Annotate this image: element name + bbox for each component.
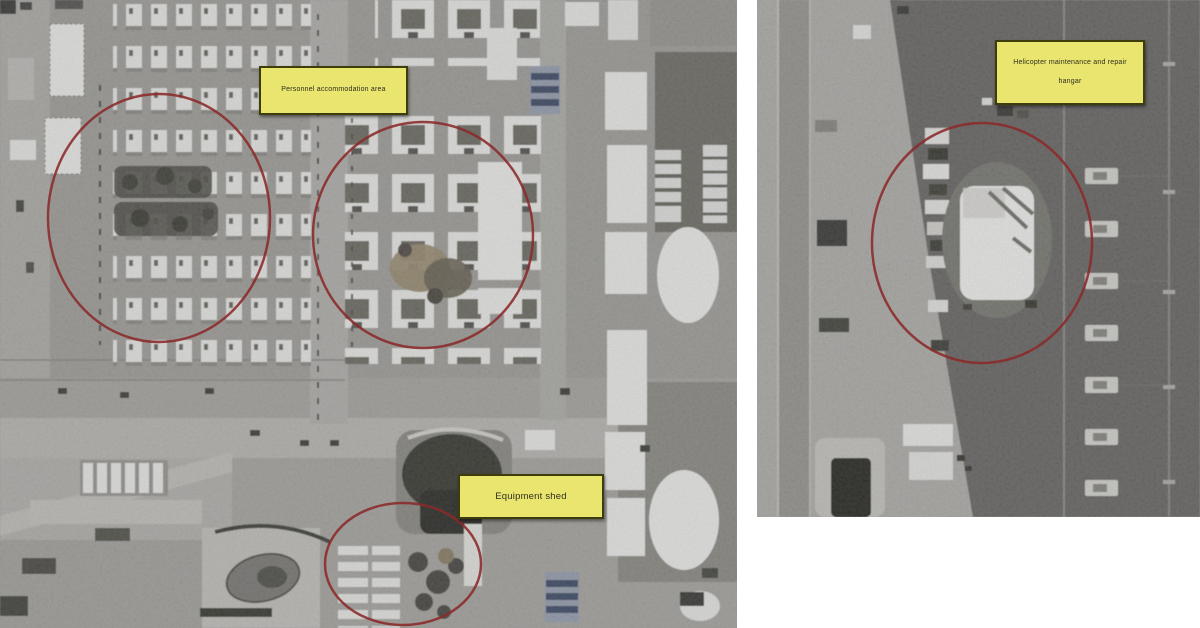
label-personnel-accommodation: Personnel accommodation area [259,66,408,115]
label-equipment-text: Equipment shed [495,491,566,502]
label-equipment-shed: Equipment shed [458,474,604,519]
label-hangar-line2: hangar [1059,78,1082,86]
annotated-satellite-figure: Personnel accommodation area Equipment s… [0,0,1200,628]
label-hangar-line1: Helicopter maintenance and repair [1013,59,1127,67]
label-helicopter-hangar: Helicopter maintenance and repair hangar [995,40,1145,105]
label-personnel-text: Personnel accommodation area [281,86,385,94]
